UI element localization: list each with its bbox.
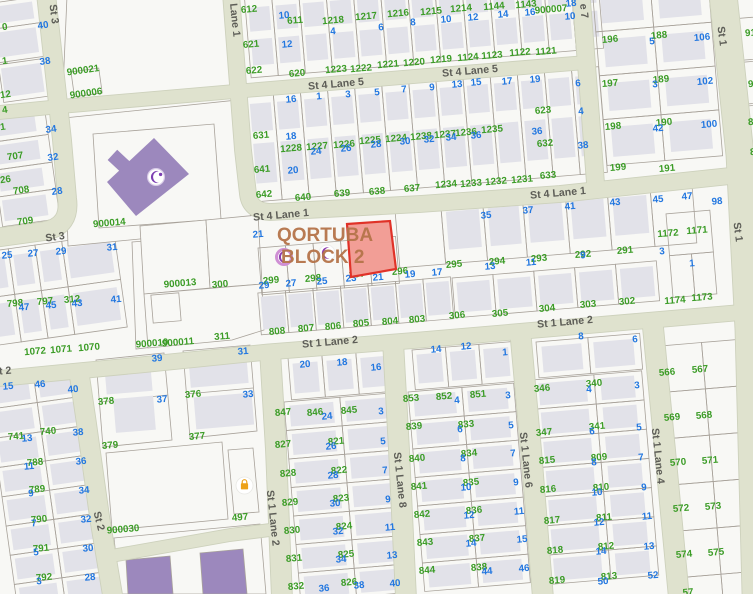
svg-text:BLOCK 2: BLOCK 2 — [281, 247, 364, 268]
svg-text:34: 34 — [445, 132, 457, 144]
svg-text:1232: 1232 — [485, 175, 508, 188]
svg-text:295: 295 — [445, 259, 463, 271]
svg-text:376: 376 — [184, 389, 202, 401]
svg-text:36: 36 — [318, 583, 330, 594]
svg-text:26: 26 — [325, 441, 337, 453]
svg-text:611: 611 — [287, 15, 304, 27]
svg-text:10: 10 — [564, 11, 576, 23]
svg-text:827: 827 — [274, 439, 292, 451]
svg-text:637: 637 — [403, 183, 421, 195]
svg-text:37: 37 — [522, 205, 534, 217]
svg-text:32: 32 — [80, 514, 92, 526]
svg-text:13: 13 — [386, 550, 398, 562]
svg-text:38: 38 — [72, 427, 84, 439]
svg-text:852: 852 — [435, 391, 453, 403]
svg-text:818: 818 — [546, 545, 564, 557]
svg-text:29: 29 — [258, 280, 270, 292]
svg-text:1121: 1121 — [535, 45, 558, 58]
svg-text:1235: 1235 — [481, 123, 504, 136]
svg-text:43: 43 — [609, 197, 621, 209]
svg-text:44: 44 — [481, 566, 493, 578]
svg-text:28: 28 — [370, 139, 382, 151]
svg-text:806: 806 — [324, 321, 342, 333]
svg-text:12: 12 — [460, 341, 472, 353]
svg-text:831: 831 — [285, 553, 303, 565]
svg-text:43: 43 — [71, 298, 83, 310]
svg-text:639: 639 — [333, 188, 351, 200]
svg-text:709: 709 — [16, 215, 34, 228]
svg-text:34: 34 — [335, 554, 347, 566]
svg-text:St 1: St 1 — [715, 26, 729, 47]
svg-text:32: 32 — [423, 134, 435, 146]
svg-text:31: 31 — [237, 346, 249, 358]
svg-text:1223: 1223 — [325, 63, 348, 76]
svg-text:45: 45 — [652, 194, 664, 206]
svg-text:708: 708 — [12, 184, 30, 197]
svg-text:19: 19 — [529, 74, 541, 86]
svg-text:14: 14 — [595, 546, 607, 558]
svg-text:36: 36 — [470, 130, 482, 142]
svg-text:50: 50 — [597, 576, 609, 588]
svg-text:707: 707 — [6, 150, 24, 163]
svg-text:32: 32 — [47, 152, 60, 164]
svg-text:17: 17 — [431, 267, 443, 279]
svg-text:623: 623 — [534, 105, 552, 117]
svg-text:12: 12 — [463, 510, 475, 522]
svg-text:13: 13 — [451, 79, 463, 91]
svg-text:845: 845 — [340, 405, 358, 417]
svg-text:844: 844 — [418, 565, 436, 577]
svg-text:839: 839 — [405, 421, 423, 433]
svg-text:638: 638 — [368, 186, 386, 198]
svg-text:828: 828 — [279, 468, 297, 480]
svg-text:817: 817 — [543, 515, 561, 527]
svg-text:1233: 1233 — [460, 177, 483, 190]
svg-text:14: 14 — [465, 538, 477, 550]
svg-text:30: 30 — [329, 498, 341, 510]
svg-text:1219: 1219 — [430, 53, 453, 66]
svg-text:198: 198 — [604, 121, 622, 133]
svg-text:29: 29 — [55, 246, 67, 258]
svg-text:46: 46 — [34, 379, 46, 391]
svg-text:27: 27 — [285, 278, 297, 290]
svg-text:11: 11 — [384, 522, 396, 534]
svg-text:199: 199 — [609, 162, 627, 174]
svg-text:40: 40 — [37, 20, 50, 32]
svg-text:197: 197 — [601, 78, 619, 90]
svg-text:815: 815 — [538, 455, 556, 467]
svg-text:40: 40 — [389, 578, 401, 590]
svg-text:1220: 1220 — [403, 56, 426, 69]
svg-text:25: 25 — [1, 250, 13, 262]
svg-text:1222: 1222 — [350, 62, 373, 75]
svg-text:571: 571 — [701, 455, 719, 467]
svg-text:106: 106 — [693, 32, 711, 44]
svg-text:16: 16 — [285, 94, 297, 106]
svg-text:632: 632 — [536, 138, 554, 150]
svg-text:740: 740 — [39, 426, 57, 438]
svg-text:39: 39 — [151, 353, 163, 365]
svg-text:642: 642 — [255, 189, 273, 201]
svg-text:10: 10 — [440, 14, 452, 26]
svg-text:306: 306 — [448, 310, 466, 322]
svg-text:26: 26 — [340, 143, 352, 155]
svg-text:11: 11 — [513, 506, 525, 518]
svg-text:853: 853 — [402, 393, 420, 405]
svg-text:18: 18 — [336, 357, 348, 369]
svg-text:13: 13 — [643, 541, 655, 553]
svg-text:15: 15 — [2, 381, 14, 393]
svg-text:803: 803 — [408, 314, 426, 326]
svg-text:841: 841 — [410, 481, 428, 493]
svg-text:1070: 1070 — [78, 341, 101, 354]
svg-text:14: 14 — [497, 9, 509, 21]
svg-text:379: 379 — [101, 440, 119, 452]
svg-text:e 7: e 7 — [577, 3, 590, 19]
svg-text:804: 804 — [381, 316, 399, 328]
svg-text:52: 52 — [647, 570, 659, 582]
svg-text:305: 305 — [491, 308, 509, 320]
svg-text:303: 303 — [579, 299, 597, 311]
svg-text:347: 347 — [535, 427, 553, 439]
svg-text:640: 640 — [294, 192, 312, 204]
svg-text:13: 13 — [21, 433, 33, 445]
svg-text:816: 816 — [539, 484, 557, 496]
svg-text:1231: 1231 — [511, 173, 534, 186]
svg-text:57: 57 — [682, 587, 694, 594]
svg-text:12: 12 — [281, 39, 293, 51]
svg-text:24: 24 — [310, 146, 322, 158]
svg-text:1216: 1216 — [387, 7, 410, 20]
svg-text:891: 891 — [748, 116, 753, 128]
svg-text:819: 819 — [548, 575, 566, 587]
svg-text:30: 30 — [399, 136, 411, 148]
svg-text:31: 31 — [106, 242, 118, 254]
svg-text:191: 191 — [658, 163, 676, 175]
svg-text:41: 41 — [110, 294, 122, 306]
svg-text:17: 17 — [501, 76, 513, 88]
svg-text:291: 291 — [616, 245, 634, 257]
svg-text:196: 196 — [601, 34, 619, 46]
svg-text:12: 12 — [593, 517, 605, 529]
svg-text:12: 12 — [467, 12, 479, 24]
svg-text:570: 570 — [669, 457, 687, 469]
svg-text:304: 304 — [538, 303, 556, 315]
svg-text:13: 13 — [484, 261, 496, 273]
svg-text:915: 915 — [745, 27, 753, 39]
svg-text:1174: 1174 — [664, 294, 687, 307]
svg-text:575: 575 — [707, 547, 725, 559]
svg-text:21: 21 — [252, 229, 264, 241]
svg-text:33: 33 — [242, 389, 254, 401]
svg-text:641: 641 — [253, 164, 271, 176]
svg-text:12: 12 — [0, 89, 12, 101]
svg-text:32: 32 — [332, 526, 344, 538]
svg-text:34: 34 — [78, 485, 90, 497]
svg-text:25: 25 — [316, 276, 328, 288]
svg-text:27: 27 — [27, 248, 39, 260]
svg-text:378: 378 — [97, 396, 115, 408]
svg-text:St 3: St 3 — [47, 4, 61, 25]
svg-text:633: 633 — [539, 170, 557, 182]
svg-text:34: 34 — [45, 124, 58, 136]
svg-text:28: 28 — [51, 186, 64, 198]
svg-text:840: 840 — [408, 453, 426, 465]
svg-text:47: 47 — [18, 302, 30, 314]
svg-text:1072: 1072 — [24, 345, 47, 358]
svg-text:302: 302 — [618, 296, 636, 308]
svg-text:1124: 1124 — [457, 51, 480, 64]
svg-text:37: 37 — [156, 394, 168, 406]
svg-text:28: 28 — [327, 470, 339, 482]
svg-text:620: 620 — [288, 68, 306, 80]
svg-text:41: 41 — [564, 201, 576, 213]
svg-text:QORTUBA: QORTUBA — [277, 225, 373, 246]
svg-text:St 1: St 1 — [731, 222, 745, 243]
svg-text:311: 311 — [214, 331, 231, 343]
svg-text:830: 830 — [283, 525, 301, 537]
svg-text:1122: 1122 — [509, 46, 532, 59]
svg-text:829: 829 — [281, 497, 299, 509]
svg-text:1071: 1071 — [50, 343, 73, 356]
svg-text:15: 15 — [470, 77, 482, 89]
svg-text:300: 300 — [211, 279, 229, 291]
svg-text:808: 808 — [268, 326, 286, 338]
svg-text:1228: 1228 — [280, 142, 303, 155]
svg-text:38: 38 — [39, 56, 52, 68]
svg-text:574: 574 — [675, 549, 693, 561]
svg-text:1234: 1234 — [435, 178, 458, 191]
svg-text:851: 851 — [469, 389, 487, 401]
svg-text:14: 14 — [430, 344, 442, 356]
svg-text:36: 36 — [75, 456, 87, 468]
svg-text:10: 10 — [460, 482, 472, 494]
svg-text:847: 847 — [274, 407, 292, 419]
svg-text:47: 47 — [681, 191, 693, 203]
svg-text:568: 568 — [695, 410, 713, 422]
svg-text:15: 15 — [516, 534, 528, 546]
svg-text:842: 842 — [413, 509, 431, 521]
svg-text:40: 40 — [67, 384, 79, 396]
svg-text:572: 572 — [672, 503, 690, 515]
svg-text:843: 843 — [416, 537, 434, 549]
svg-text:805: 805 — [352, 318, 370, 330]
svg-text:917: 917 — [748, 78, 753, 90]
svg-text:19: 19 — [404, 269, 416, 281]
svg-text:1217: 1217 — [355, 10, 378, 23]
svg-text:16: 16 — [370, 362, 382, 374]
svg-text:30: 30 — [82, 543, 94, 555]
svg-text:St 2: St 2 — [0, 365, 12, 379]
svg-text:807: 807 — [297, 323, 315, 335]
svg-text:569: 569 — [663, 412, 681, 424]
svg-text:20: 20 — [299, 359, 311, 371]
svg-text:26: 26 — [0, 174, 12, 186]
svg-text:11: 11 — [23, 461, 35, 473]
svg-text:567: 567 — [691, 364, 709, 376]
svg-text:10: 10 — [591, 487, 603, 499]
svg-text:89: 89 — [750, 146, 753, 158]
svg-text:832: 832 — [287, 581, 305, 593]
svg-text:45: 45 — [45, 300, 57, 312]
svg-text:11: 11 — [525, 257, 537, 269]
svg-text:11: 11 — [641, 511, 653, 523]
svg-text:98: 98 — [711, 196, 723, 208]
svg-text:18: 18 — [285, 131, 297, 143]
svg-text:24: 24 — [321, 411, 333, 423]
svg-text:1173: 1173 — [691, 291, 714, 304]
svg-text:621: 621 — [242, 39, 260, 51]
svg-text:497: 497 — [231, 512, 249, 524]
svg-text:42: 42 — [652, 123, 664, 135]
svg-text:102: 102 — [696, 76, 714, 88]
svg-text:377: 377 — [188, 431, 206, 443]
svg-text:100: 100 — [700, 119, 718, 131]
svg-text:38: 38 — [577, 140, 589, 152]
svg-text:573: 573 — [704, 501, 722, 513]
svg-text:36: 36 — [531, 126, 543, 138]
svg-text:1221: 1221 — [377, 58, 400, 71]
svg-text:46: 46 — [518, 563, 530, 575]
svg-text:38: 38 — [353, 580, 365, 592]
svg-text:631: 631 — [252, 130, 270, 142]
svg-text:1123: 1123 — [481, 49, 504, 62]
svg-text:1172: 1172 — [657, 227, 680, 240]
svg-text:612: 612 — [240, 4, 258, 16]
svg-text:346: 346 — [533, 383, 551, 395]
svg-text:566: 566 — [658, 367, 676, 379]
svg-text:20: 20 — [287, 165, 299, 177]
svg-text:1171: 1171 — [686, 224, 709, 237]
svg-text:622: 622 — [245, 65, 263, 77]
svg-text:28: 28 — [84, 572, 96, 584]
svg-text:35: 35 — [480, 210, 492, 222]
